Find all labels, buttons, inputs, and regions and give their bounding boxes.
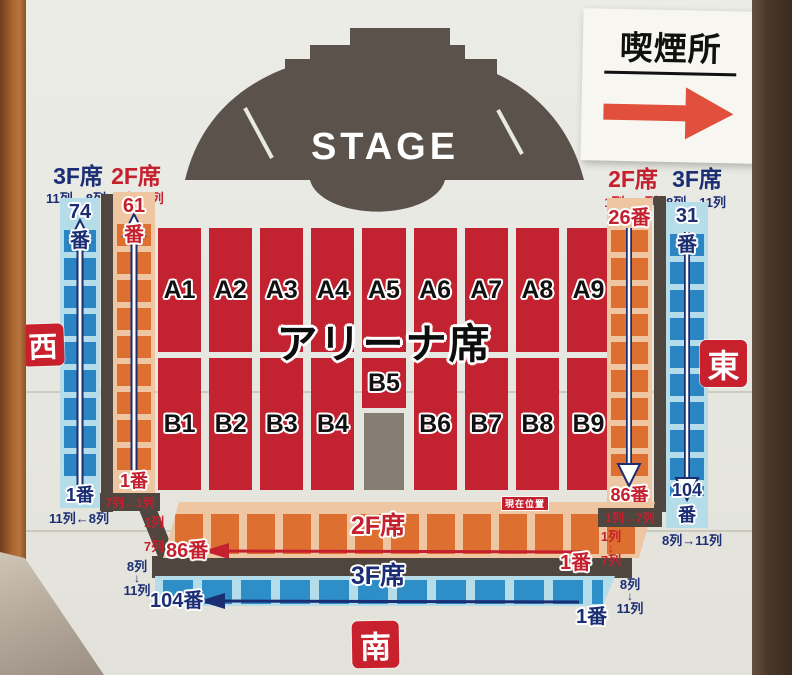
west-2f-header: 2F席: [106, 157, 166, 191]
venue-seating-map-photo: STAGE 喫煙所 3F席 2F席 11列←8列 7列←1列 74番 1番 11…: [0, 0, 792, 675]
east-2f-start-number: 26番: [607, 201, 652, 230]
arena-block: B8: [516, 358, 559, 490]
arena-block: B9: [567, 358, 610, 490]
south-2f-row-range-stack: 1列 ↓ 7列: [140, 516, 168, 553]
south-2f-far-number: 86番: [166, 534, 208, 563]
floor: [0, 552, 104, 675]
right-wall: [752, 0, 792, 675]
east-2f-stand-strip: 26番 86番: [607, 198, 652, 508]
arena-block: B6: [414, 358, 457, 490]
arena-block: B3: [260, 358, 303, 490]
west-2f-end-number: 1番: [113, 467, 155, 493]
south-2f-near-number: 1番: [560, 546, 591, 575]
east-3f-start-number: 31番: [666, 205, 708, 257]
south-3f-row-range-stack: 8列 ↓ 11列: [120, 560, 154, 597]
stage-label: STAGE: [311, 126, 459, 168]
arena-block: B7: [465, 358, 508, 490]
south-2f-label: 2F席: [330, 506, 426, 542]
east-2f-header: 2F席: [602, 160, 664, 194]
south-3f-far-number: 104番: [150, 584, 203, 613]
east-3f-end-row-range: 8列→11列: [654, 530, 730, 549]
east-3f-end-number: 104番: [666, 480, 708, 527]
stage-shape: STAGE: [150, 16, 620, 216]
east-3f-header: 3F席: [664, 160, 730, 194]
west-direction-badge: 西: [21, 323, 64, 366]
arena-title: アリーナ席: [186, 310, 582, 370]
west-strip-divider: [101, 194, 113, 512]
arena-row-b: B1 B2 B3 B4 B5 B6 B7 B8 B9: [158, 358, 610, 490]
west-3f-start-number: 74番: [60, 201, 100, 253]
west-2f-stand-strip: 61番 1番: [113, 192, 155, 494]
east-strip-divider: [654, 196, 666, 512]
arena-block: B1: [158, 358, 201, 490]
east-direction-badge: 東: [700, 340, 747, 387]
arena-block: B2: [209, 358, 252, 490]
smoking-area-sign: 喫煙所: [580, 8, 759, 164]
south-3f-row-range-stack: 8列 ↓ 11列: [612, 578, 648, 615]
left-wall: [0, 0, 26, 600]
west-3f-header: 3F席: [48, 157, 108, 191]
west-2f-end-row-range-chip: 7列←1列: [100, 493, 160, 511]
south-2f-row-range-stack: 1列 ↓ 7列: [596, 530, 626, 567]
arena-block-b5-column: B5: [362, 358, 405, 490]
row-direction-arrow-down-icon: [607, 198, 652, 508]
mixer-booth-block: [364, 413, 403, 490]
smoking-direction-arrow-icon: [580, 73, 758, 161]
west-3f-stand-strip: 74番 1番: [60, 198, 100, 508]
arena-block: B4: [311, 358, 354, 490]
west-2f-end-row-range: 7列←1列: [100, 494, 160, 511]
south-direction-badge: 南: [352, 621, 400, 669]
smoking-area-title: 喫煙所: [604, 21, 737, 77]
west-2f-start-number: 61番: [113, 195, 155, 247]
south-3f-near-number: 1番: [576, 600, 607, 629]
west-3f-end-number: 1番: [60, 481, 100, 507]
seat-number-direction-arrow-icon: [155, 576, 615, 622]
current-location-badge: 現在位置: [501, 496, 549, 511]
